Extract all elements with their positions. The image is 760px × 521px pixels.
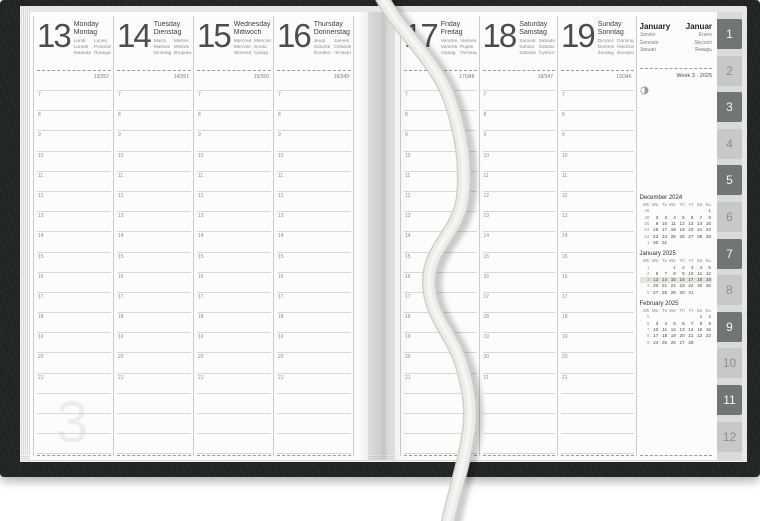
hour-row-20: 20 xyxy=(117,353,191,373)
hour-row-17: 17 xyxy=(117,293,191,313)
month-name-intl: Januari xyxy=(640,47,656,53)
hour-row-7: 7 xyxy=(277,91,351,111)
hour-label: 18 xyxy=(117,313,191,320)
month-tab-strip: 123456789101112 xyxy=(717,12,742,460)
day-name-german: Mittwoch xyxy=(234,29,271,37)
day-header: 15WednesdayMittwochMercrediMercoledìWoen… xyxy=(197,16,271,68)
hour-label: 9 xyxy=(404,131,477,138)
hour-row-13: 13 xyxy=(404,212,477,232)
mini-calendar-title: January 2025 xyxy=(640,251,713,257)
blank-row xyxy=(277,434,351,454)
hour-row-8: 8 xyxy=(404,111,477,131)
hour-label: 20 xyxy=(37,353,111,360)
hour-label: 19 xyxy=(197,333,271,340)
month-name-intl: Январь xyxy=(695,47,712,53)
hour-label: 19 xyxy=(561,333,634,340)
month-name-intl-row: JanuariЯнварь xyxy=(640,47,713,53)
left-page: 3 13MondayMontagLundiLunedìMaandagLunesP… xyxy=(30,12,368,460)
hour-row-12: 12 xyxy=(483,192,556,212)
hour-row-8: 8 xyxy=(483,111,556,131)
hour-label: 12 xyxy=(277,192,351,199)
month-tab-7: 7 xyxy=(717,239,742,269)
hour-row-11: 11 xyxy=(277,172,351,192)
hour-row-7: 7 xyxy=(117,91,191,111)
hour-label: 16 xyxy=(37,273,111,280)
right-page: 17FridayFreitagVendrediVenerdìVrijdagVie… xyxy=(395,12,717,460)
hour-row-20: 20 xyxy=(197,353,271,373)
hour-label: 7 xyxy=(483,91,556,98)
hour-label: 13 xyxy=(483,212,556,219)
day-names-intl-left: MercrediMercoledìWoensdag xyxy=(234,39,251,56)
mini-calendar-day xyxy=(703,340,712,346)
hour-row-18: 18 xyxy=(404,313,477,333)
hour-label: 16 xyxy=(561,273,634,280)
day-column-15: 15WednesdayMittwochMercrediMercoledìWoen… xyxy=(193,16,273,456)
mini-calendar-week-number: 9 xyxy=(640,340,651,346)
mini-calendar-day xyxy=(694,240,703,246)
hour-row-19: 19 xyxy=(197,333,271,353)
blank-row xyxy=(277,82,351,91)
day-name-german: Dienstag xyxy=(154,29,191,37)
hour-label: 9 xyxy=(483,131,556,138)
mini-calendar-grid: WkMoTuWeThFrSaSu481492345678509101112131… xyxy=(640,202,713,246)
hour-row-20: 20 xyxy=(37,353,111,373)
hour-label: 16 xyxy=(404,273,477,280)
day-names: FridayFreitagVendrediVenerdìVrijdagViern… xyxy=(441,18,477,68)
mini-calendar-day xyxy=(668,240,677,246)
hour-row-8: 8 xyxy=(277,111,351,131)
hour-row-19: 19 xyxy=(404,333,477,353)
hour-label: 14 xyxy=(483,232,556,239)
blank-row xyxy=(197,414,271,434)
hour-row-10: 10 xyxy=(404,152,477,172)
hour-label: 10 xyxy=(37,152,111,159)
hour-row-17: 17 xyxy=(277,293,351,313)
blank-row xyxy=(277,394,351,414)
day-name-english: Monday xyxy=(74,21,111,29)
hour-label: 14 xyxy=(197,232,271,239)
hour-label: 12 xyxy=(197,192,271,199)
hour-row-10: 10 xyxy=(277,152,351,172)
hour-row-17: 17 xyxy=(561,293,634,313)
hour-row-19: 19 xyxy=(277,333,351,353)
month-tab-4: 4 xyxy=(717,129,742,159)
column-end-divider xyxy=(117,455,191,456)
day-name-german: Samstag xyxy=(519,29,555,37)
column-end-divider xyxy=(277,455,351,456)
month-tab-12: 12 xyxy=(717,422,742,452)
day-name-intl: Понедельник xyxy=(94,51,111,57)
day-name-german: Freitag xyxy=(441,29,477,37)
column-end-divider xyxy=(483,455,556,456)
day-name-intl: Poniedziałek xyxy=(94,45,111,51)
mini-calendar-day xyxy=(677,240,686,246)
day-names-intl-left: VendrediVenerdìVrijdag xyxy=(441,39,457,56)
hour-row-19: 19 xyxy=(37,333,111,353)
blank-row xyxy=(561,434,634,454)
hour-row-9: 9 xyxy=(117,131,191,151)
hour-label: 21 xyxy=(277,374,351,381)
day-name-intl: Donderdag xyxy=(314,51,331,57)
day-name-intl: Пятница xyxy=(460,51,476,57)
blank-row xyxy=(404,434,477,454)
mini-calendar-week-number: 1 xyxy=(640,240,651,246)
day-name-intl: Vrijdag xyxy=(441,51,457,57)
hour-row-21: 21 xyxy=(483,374,556,394)
day-names-intl-right: ViernesPiątekПятница xyxy=(460,39,476,56)
hour-label: 14 xyxy=(277,232,351,239)
day-column-17: 17FridayFreitagVendrediVenerdìVrijdagVie… xyxy=(400,16,479,456)
hour-row-15: 15 xyxy=(277,253,351,273)
day-names-intl: DimancheDomenicaZondagDomingoNiedzielaВо… xyxy=(598,39,634,56)
mini-calendar-day: 27 xyxy=(651,290,660,296)
hour-row-18: 18 xyxy=(277,313,351,333)
day-name-intl: Giovedì xyxy=(314,45,331,51)
hour-row-16: 16 xyxy=(37,273,111,293)
hour-row-17: 17 xyxy=(404,293,477,313)
day-column-19: 19SundaySonntagDimancheDomenicaZondagDom… xyxy=(557,16,636,456)
mini-calendar-day: 28 xyxy=(659,290,668,296)
hour-label: 15 xyxy=(277,253,351,260)
day-names-intl-right: JuevesCzwartekЧетверг xyxy=(334,39,351,56)
mini-calendar-grid: WkMoTuWeThFrSaSu112345267891011123131415… xyxy=(640,258,713,296)
day-header: 14TuesdayDienstagMardiMartedìDinsdagMart… xyxy=(117,16,191,68)
day-names-intl: MardiMartedìDinsdagMartesWtorekВторник xyxy=(154,39,191,56)
hour-row-7: 7 xyxy=(561,91,634,111)
hour-row-17: 17 xyxy=(37,293,111,313)
day-name-german: Montag xyxy=(74,29,111,37)
hour-label: 11 xyxy=(37,172,111,179)
day-header: 18SaturdaySamstagSamediSabatoZaterdagSáb… xyxy=(483,16,556,68)
hour-row-18: 18 xyxy=(561,313,634,333)
day-of-year: 17/348 xyxy=(404,71,477,82)
day-header: 19SundaySonntagDimancheDomenicaZondagDom… xyxy=(561,16,634,68)
month-name-intl-row: JanvierEnero xyxy=(640,32,713,38)
blank-row xyxy=(483,394,556,414)
blank-row xyxy=(404,414,477,434)
blank-row xyxy=(483,434,556,454)
hour-row-9: 9 xyxy=(404,131,477,151)
day-names-intl: MercrediMercoledìWoensdagMiércolesŚrodaС… xyxy=(234,39,271,56)
hour-row-19: 19 xyxy=(561,333,634,353)
hour-row-18: 18 xyxy=(197,313,271,333)
right-page-day-columns: 17FridayFreitagVendrediVenerdìVrijdagVie… xyxy=(395,12,717,460)
hour-row-9: 9 xyxy=(37,131,111,151)
day-of-year: 16/349 xyxy=(277,71,351,82)
day-of-year: 19/346 xyxy=(561,71,634,82)
day-name-intl: Sabato xyxy=(519,45,535,51)
hour-label: 19 xyxy=(404,333,477,340)
hour-row-20: 20 xyxy=(404,353,477,373)
hour-row-15: 15 xyxy=(561,253,634,273)
hour-label: 15 xyxy=(197,253,271,260)
month-name-intl-row: GennaioStyczeń xyxy=(640,40,713,46)
day-of-year: 13/352 xyxy=(37,71,111,82)
hour-label: 13 xyxy=(117,212,191,219)
day-column-14: 14TuesdayDienstagMardiMartedìDinsdagMart… xyxy=(113,16,193,456)
mini-calendars: December 2024WkMoTuWeThFrSaSu48149234567… xyxy=(640,195,713,351)
column-end-divider xyxy=(561,455,634,456)
hour-label: 15 xyxy=(404,253,477,260)
day-name-intl: Среда xyxy=(254,51,271,57)
mini-calendar-grid: WkMoTuWeThFrSaSu512634567897101112131415… xyxy=(640,308,713,346)
hour-label: 21 xyxy=(37,374,111,381)
hour-row-20: 20 xyxy=(561,353,634,373)
hour-row-10: 10 xyxy=(561,152,634,172)
month-panel-header: JanuaryJanuarJanvierEneroGennaioStyczeńJ… xyxy=(640,16,713,66)
day-name-english: Thursday xyxy=(314,21,351,29)
day-names: SaturdaySamstagSamediSabatoZaterdagSábad… xyxy=(519,18,555,68)
day-names-intl-right: LunesPoniedziałekПонедельник xyxy=(94,39,111,56)
hour-label: 7 xyxy=(117,91,191,98)
hour-row-11: 11 xyxy=(561,172,634,192)
hour-row-11: 11 xyxy=(483,172,556,192)
month-panel-january: JanuaryJanuarJanvierEneroGennaioStyczeńJ… xyxy=(636,16,715,456)
hour-row-13: 13 xyxy=(561,212,634,232)
hour-label: 17 xyxy=(561,293,634,300)
mini-calendar-january-2025: January 2025WkMoTuWeThFrSaSu112345267891… xyxy=(640,251,713,296)
hour-label: 7 xyxy=(197,91,271,98)
day-name-intl: Четверг xyxy=(334,51,351,57)
mini-calendar-day: 27 xyxy=(677,340,686,346)
mini-calendar-day xyxy=(686,240,695,246)
hour-row-7: 7 xyxy=(404,91,477,111)
hour-row-13: 13 xyxy=(117,212,191,232)
hour-row-7: 7 xyxy=(483,91,556,111)
hour-row-8: 8 xyxy=(117,111,191,131)
day-name-intl: Miércoles xyxy=(254,39,271,45)
hour-label: 16 xyxy=(197,273,271,280)
hour-row-16: 16 xyxy=(117,273,191,293)
hour-row-13: 13 xyxy=(37,212,111,232)
hour-label: 9 xyxy=(561,131,634,138)
hour-row-21: 21 xyxy=(561,374,634,394)
hour-row-14: 14 xyxy=(197,232,271,252)
hour-row-10: 10 xyxy=(197,152,271,172)
hour-label: 19 xyxy=(277,333,351,340)
hour-label: 14 xyxy=(404,232,477,239)
blank-row xyxy=(197,394,271,414)
hour-label: 21 xyxy=(483,374,556,381)
hour-row-21: 21 xyxy=(37,374,111,394)
hour-row-20: 20 xyxy=(483,353,556,373)
day-name-intl: Samedi xyxy=(519,39,535,45)
hour-row-12: 12 xyxy=(197,192,271,212)
mini-calendar-february-2025: February 2025WkMoTuWeThFrSaSu51263456789… xyxy=(640,301,713,346)
hour-label: 20 xyxy=(561,353,634,360)
day-names-intl: JeudiGiovedìDonderdagJuevesCzwartekЧетве… xyxy=(314,39,351,56)
hour-label: 7 xyxy=(277,91,351,98)
hour-label: 12 xyxy=(37,192,111,199)
hour-row-15: 15 xyxy=(117,253,191,273)
hour-label: 15 xyxy=(483,253,556,260)
hour-row-19: 19 xyxy=(483,333,556,353)
mini-calendar-day: 30 xyxy=(651,240,660,246)
hour-label: 21 xyxy=(117,374,191,381)
hour-label: 9 xyxy=(277,131,351,138)
hour-label: 11 xyxy=(197,172,271,179)
hour-label: 7 xyxy=(404,91,477,98)
hour-label: 20 xyxy=(483,353,556,360)
month-tab-3: 3 xyxy=(717,92,742,122)
day-name-intl: Vendredi xyxy=(441,39,457,45)
day-number: 15 xyxy=(197,18,230,68)
hour-label: 8 xyxy=(117,111,191,118)
hour-row-12: 12 xyxy=(277,192,351,212)
day-name-english: Wednesday xyxy=(234,21,271,29)
month-name-intl: Styczeń xyxy=(694,40,712,46)
hour-label: 10 xyxy=(561,152,634,159)
hour-label: 8 xyxy=(277,111,351,118)
day-names-intl-left: MardiMartedìDinsdag xyxy=(154,39,171,56)
day-number: 19 xyxy=(561,18,594,68)
hour-label: 17 xyxy=(483,293,556,300)
blank-row xyxy=(117,414,191,434)
day-name-intl: Mercoledì xyxy=(234,45,251,51)
hour-row-9: 9 xyxy=(197,131,271,151)
month-tab-9: 9 xyxy=(717,312,742,342)
hour-label: 12 xyxy=(561,192,634,199)
hour-label: 17 xyxy=(404,293,477,300)
hour-row-20: 20 xyxy=(277,353,351,373)
hour-row-11: 11 xyxy=(404,172,477,192)
month-tab-6: 6 xyxy=(717,202,742,232)
hour-label: 8 xyxy=(197,111,271,118)
day-names: TuesdayDienstagMardiMartedìDinsdagMartes… xyxy=(154,18,191,68)
blank-row xyxy=(117,394,191,414)
blank-row xyxy=(404,82,477,91)
day-names-intl-left: SamediSabatoZaterdag xyxy=(519,39,535,56)
day-names-intl-right: MiércolesŚrodaСреда xyxy=(254,39,271,56)
hour-row-16: 16 xyxy=(483,273,556,293)
hour-label: 7 xyxy=(37,91,111,98)
day-name-english: Tuesday xyxy=(154,21,191,29)
day-column-18: 18SaturdaySamstagSamediSabatoZaterdagSáb… xyxy=(479,16,558,456)
day-column-13: 13MondayMontagLundiLunedìMaandagLunesPon… xyxy=(33,16,113,456)
hour-row-12: 12 xyxy=(404,192,477,212)
moon-phase-icon xyxy=(640,82,713,91)
hour-label: 18 xyxy=(277,313,351,320)
hour-label: 8 xyxy=(404,111,477,118)
month-tab-10: 10 xyxy=(717,348,742,378)
hour-label: 17 xyxy=(37,293,111,300)
mini-calendar-title: February 2025 xyxy=(640,301,713,307)
day-names-intl: SamediSabatoZaterdagSábadoSobotaСуббота xyxy=(519,39,555,56)
hour-row-14: 14 xyxy=(37,232,111,252)
hour-label: 8 xyxy=(37,111,111,118)
mini-calendar-day: 28 xyxy=(686,340,695,346)
day-name-intl: Martes xyxy=(174,39,191,45)
day-of-year: 14/351 xyxy=(117,71,191,82)
day-name-english: Friday xyxy=(441,21,477,29)
hour-label: 8 xyxy=(483,111,556,118)
hour-row-10: 10 xyxy=(37,152,111,172)
hour-row-21: 21 xyxy=(277,374,351,394)
hour-row-16: 16 xyxy=(404,273,477,293)
hour-row-11: 11 xyxy=(197,172,271,192)
hour-label: 18 xyxy=(37,313,111,320)
hour-row-14: 14 xyxy=(404,232,477,252)
hour-row-13: 13 xyxy=(483,212,556,232)
day-names: ThursdayDonnerstagJeudiGiovedìDonderdagJ… xyxy=(314,18,351,68)
day-name-intl: Viernes xyxy=(460,39,476,45)
blank-row xyxy=(117,82,191,91)
hour-row-17: 17 xyxy=(197,293,271,313)
day-name-intl: Dinsdag xyxy=(154,51,171,57)
hour-label: 13 xyxy=(197,212,271,219)
day-name-intl: Wtorek xyxy=(174,45,191,51)
hour-label: 9 xyxy=(197,131,271,138)
hour-row-21: 21 xyxy=(404,374,477,394)
hour-label: 12 xyxy=(404,192,477,199)
hour-label: 7 xyxy=(561,91,634,98)
hour-label: 10 xyxy=(404,152,477,159)
hour-label: 20 xyxy=(404,353,477,360)
blank-row xyxy=(37,414,111,434)
hour-label: 8 xyxy=(561,111,634,118)
hour-label: 10 xyxy=(277,152,351,159)
day-name-intl: Воскресенье xyxy=(617,51,633,57)
hour-label: 13 xyxy=(277,212,351,219)
blank-row xyxy=(117,434,191,454)
day-name-intl: Zondag xyxy=(598,51,614,57)
month-tab-8: 8 xyxy=(717,275,742,305)
column-end-divider xyxy=(404,455,477,456)
hour-row-10: 10 xyxy=(483,152,556,172)
hour-row-16: 16 xyxy=(561,273,634,293)
day-name-intl: Dimanche xyxy=(598,39,614,45)
hour-label: 13 xyxy=(404,212,477,219)
day-name-intl: Вторник xyxy=(174,51,191,57)
day-of-year: 15/350 xyxy=(197,71,271,82)
day-number: 14 xyxy=(117,18,150,68)
month-tab-2: 2 xyxy=(717,56,742,86)
column-end-divider xyxy=(640,455,713,456)
hour-row-14: 14 xyxy=(277,232,351,252)
week-label: Week 3 · 2025 xyxy=(640,69,713,79)
day-names: SundaySonntagDimancheDomenicaZondagDomin… xyxy=(598,18,634,68)
hour-row-18: 18 xyxy=(483,313,556,333)
day-name-intl: Суббота xyxy=(539,51,555,57)
hour-label: 9 xyxy=(117,131,191,138)
hour-row-12: 12 xyxy=(117,192,191,212)
day-name-german: Donnerstag xyxy=(314,29,351,37)
blank-row xyxy=(561,82,634,91)
hour-row-21: 21 xyxy=(197,374,271,394)
hour-label: 18 xyxy=(197,313,271,320)
hour-label: 20 xyxy=(277,353,351,360)
day-names-intl: VendrediVenerdìVrijdagViernesPiątekПятни… xyxy=(441,39,477,56)
day-name-english: Saturday xyxy=(519,21,555,29)
hour-label: 11 xyxy=(117,172,191,179)
hour-row-18: 18 xyxy=(37,313,111,333)
hour-label: 11 xyxy=(404,172,477,179)
day-names-intl-right: SábadoSobotaСуббота xyxy=(539,39,555,56)
day-number: 16 xyxy=(277,18,310,68)
month-tab-1: 1 xyxy=(717,19,742,49)
hour-row-12: 12 xyxy=(561,192,634,212)
blank-row xyxy=(37,82,111,91)
day-name-german: Sonntag xyxy=(598,29,634,37)
month-tab-11: 11 xyxy=(717,385,742,415)
hour-row-9: 9 xyxy=(277,131,351,151)
hour-label: 11 xyxy=(277,172,351,179)
hour-label: 10 xyxy=(483,152,556,159)
hour-label: 18 xyxy=(561,313,634,320)
day-name-intl: Domingo xyxy=(617,39,633,45)
hour-label: 16 xyxy=(483,273,556,280)
mini-calendar-day: 25 xyxy=(659,340,668,346)
